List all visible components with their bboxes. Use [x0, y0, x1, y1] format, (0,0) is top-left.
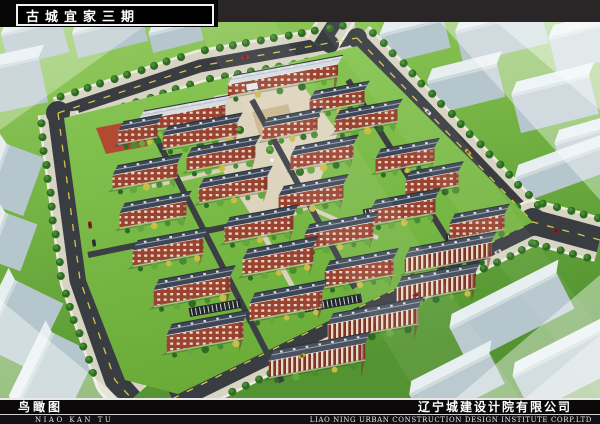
company-name-cn: 辽宁城建设计院有限公司 — [418, 400, 572, 414]
company-name-en: LIAO NING URBAN CONSTRUCTION DESIGN INST… — [310, 416, 592, 424]
project-title: 古城宜家三期 — [18, 6, 140, 25]
drawing-sheet: 古城宜家三期 鸟瞰图 辽宁城建设计院有限公司 NIAO KAN TU LIAO … — [0, 0, 600, 424]
drawing-title-en: NIAO KAN TU — [35, 416, 113, 424]
footer-bar-cn: 鸟瞰图 辽宁城建设计院有限公司 — [0, 400, 600, 414]
footer-bar-en: NIAO KAN TU LIAO NING URBAN CONSTRUCTION… — [0, 415, 600, 424]
drawing-title-cn: 鸟瞰图 — [18, 400, 63, 414]
title-block: 古城宜家三期 — [0, 0, 218, 27]
aerial-rendering — [0, 0, 600, 399]
project-title-box: 古城宜家三期 — [16, 4, 214, 26]
rendering-canvas — [0, 0, 600, 399]
